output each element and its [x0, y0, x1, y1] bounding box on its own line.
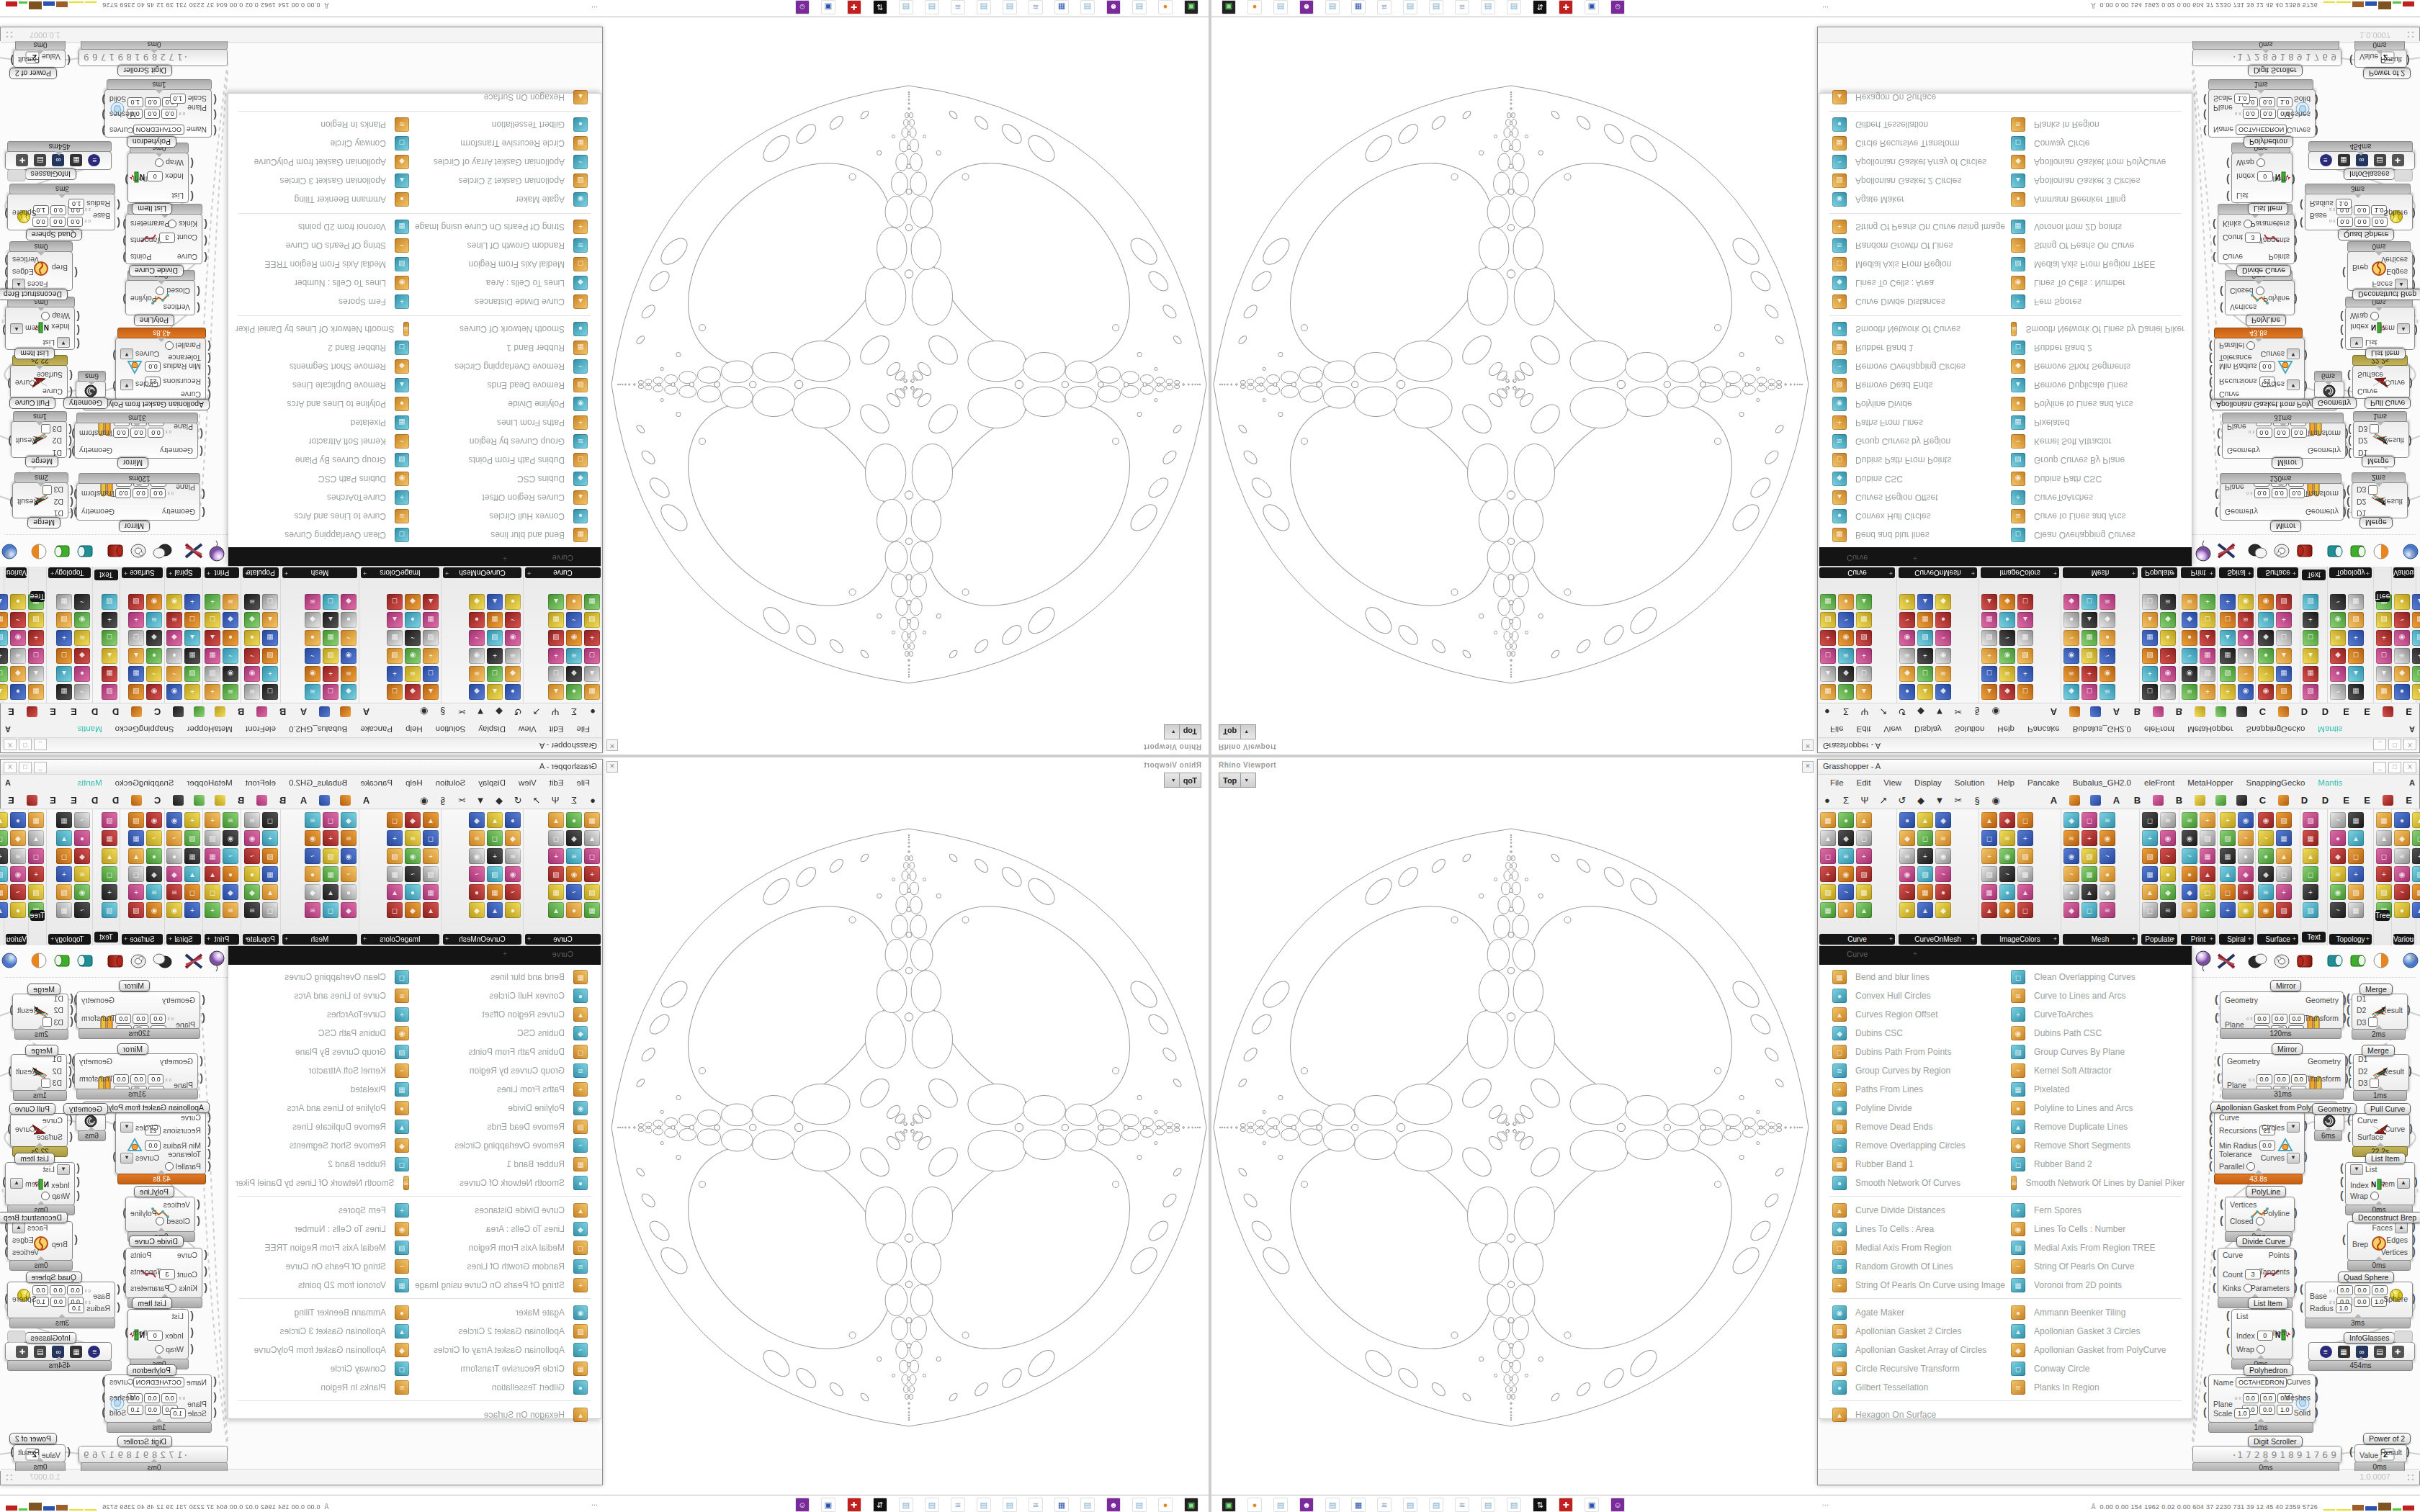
tab-curveonmesh[interactable]: CurveOnMesh+ — [443, 934, 521, 945]
minimize-button[interactable]: _ — [2373, 739, 2386, 750]
number-input[interactable]: 0.0 — [67, 217, 83, 227]
menu-item[interactable]: ◆Remove Short Segments — [2011, 1136, 2184, 1155]
menu-item[interactable]: ◉Dubins Path CSC — [236, 1024, 409, 1043]
minimize-button[interactable]: _ — [2373, 762, 2386, 773]
component-icon[interactable]: ● — [505, 594, 521, 610]
component-icon[interactable]: + — [2376, 630, 2392, 646]
component-icon[interactable]: ▦ — [2200, 848, 2215, 864]
menu-item[interactable]: ▨Remove Dead Ends — [1832, 376, 2005, 395]
gh-component-divide-curve[interactable]: CurveCount3KinksPointsTangentsParameters — [2218, 214, 2295, 264]
gh-component-apollonian-gasket-from-polycurve[interactable]: CurveRecursions21Min Radius0.0ToleranceP… — [115, 1112, 206, 1174]
component-icon[interactable]: ≋ — [2099, 902, 2115, 918]
component-icon[interactable]: + — [2412, 648, 2420, 664]
component-icon[interactable]: ▲ — [2081, 884, 2097, 900]
number-input[interactable]: 0.0 — [2272, 1014, 2287, 1024]
component-icon[interactable]: ● — [146, 648, 162, 664]
component-icon[interactable]: ~ — [223, 648, 238, 664]
menu-item[interactable]: +String Of Pearls On Curve using Image — [1832, 217, 2005, 236]
component-icon[interactable]: ▦ — [387, 866, 403, 882]
toolbar-plugin-letter-14[interactable]: E — [63, 707, 84, 718]
menu-item[interactable]: ◻Rubber Band 2 — [2011, 338, 2184, 357]
component-icon[interactable]: ~ — [1935, 630, 1951, 646]
component-name-tag[interactable]: InfoGlasses — [25, 1332, 76, 1344]
component-icon[interactable]: ≋ — [166, 884, 182, 900]
component-icon[interactable]: ≋ — [2238, 884, 2254, 900]
tab-mesh[interactable]: Mesh+ — [2063, 934, 2138, 945]
close-button[interactable]: X — [4, 762, 17, 773]
tab-add-icon[interactable]: + — [245, 567, 248, 578]
component-icon[interactable]: ≋ — [1838, 848, 1854, 864]
digit[interactable]: ·1 — [177, 1449, 189, 1460]
menu-item[interactable]: ◻Medial Axis From Region — [1832, 255, 2005, 274]
number-input[interactable]: 0.0 — [2259, 98, 2275, 108]
number-input[interactable]: 1.0 — [2234, 1408, 2250, 1418]
menu-item[interactable]: ●Convex Hull Circles — [1832, 986, 2005, 1005]
number-input[interactable]: 0.0 — [133, 1014, 148, 1024]
menu-item[interactable]: +CurveToArches — [236, 488, 409, 507]
menu-item[interactable]: ▲Apollonian Gasket 3 Circles — [2011, 1322, 2184, 1341]
menu-item-bubalus_gh2.0[interactable]: Bubalus_GH2.0 — [282, 778, 354, 787]
toolbar-icon-0[interactable]: ● — [583, 795, 602, 806]
menu-item[interactable]: ~Kernel Soft Attractor — [2011, 1061, 2184, 1080]
component-icon[interactable]: ◉ — [146, 902, 162, 918]
component-icon[interactable]: ▲ — [0, 812, 8, 828]
tab-add-icon[interactable]: + — [2210, 934, 2213, 945]
toolbar-plugin-letter-17[interactable]: E — [2398, 795, 2419, 806]
component-icon[interactable]: ◆ — [2099, 884, 2115, 900]
menu-item[interactable]: ◉Lines To Cells : Number — [2011, 1220, 2184, 1238]
component-name-tag[interactable]: Geometry — [63, 1103, 108, 1115]
component-icon[interactable]: ◉ — [2238, 594, 2254, 610]
component-icon[interactable]: + — [2017, 666, 2033, 682]
menu-item[interactable]: ◻Dubins Path From Points — [1832, 451, 2005, 469]
component-icon[interactable]: + — [1981, 648, 1997, 664]
menu-item[interactable]: ▦Circle Recursive Transform — [1832, 1359, 2005, 1378]
component-icon[interactable]: + — [584, 630, 600, 646]
taskbar-app-badge-purple[interactable]: ☺ — [795, 1498, 810, 1512]
menu-item-snappinggecko[interactable]: SnappingGecko — [2239, 725, 2311, 734]
toolbar-plugin-letter-15[interactable]: E — [42, 707, 63, 718]
menu-item[interactable]: ◉Lines To Cells : Number — [2011, 274, 2184, 292]
component-icon[interactable]: ~ — [2258, 666, 2274, 682]
number-input[interactable]: 1.0 — [68, 1303, 84, 1313]
digit[interactable]: ·1 — [2231, 53, 2243, 63]
component-icon[interactable]: ◻ — [1917, 666, 1933, 682]
component-icon[interactable]: ◻ — [2142, 902, 2158, 918]
menu-item[interactable]: ~Remove Overlapping Circles — [415, 357, 588, 376]
number-input[interactable]: 0.0 — [32, 217, 48, 227]
component-icon[interactable]: ▨ — [28, 612, 44, 628]
component-icon[interactable]: ~ — [469, 866, 485, 882]
menu-item[interactable]: ◉Polyline Divide — [415, 1099, 588, 1117]
viewport-view-name[interactable]: Top — [1179, 725, 1201, 739]
component-name-tag[interactable]: Deconstruct Brep — [0, 1212, 68, 1223]
window-titlebar[interactable]: Grasshopper - A _□X — [1818, 737, 2419, 752]
component-name-tag[interactable]: Merge — [2362, 456, 2395, 467]
component-icon[interactable]: ◉ — [305, 830, 321, 846]
toolbar-plugin-letter-12[interactable]: D — [2294, 707, 2315, 718]
component-icon[interactable]: ▦ — [2303, 830, 2318, 846]
gh-component-divide-curve[interactable]: CurveCount3KinksPointsTangentsParameters — [125, 214, 202, 264]
canvas-toolbar-sphere-dark-icon[interactable] — [2247, 539, 2269, 560]
component-icon[interactable]: ◻ — [323, 684, 339, 700]
number-input[interactable]: 0.0 — [2289, 1014, 2305, 1024]
menu-item[interactable]: ▦Circle Recursive Transform — [415, 1359, 588, 1378]
component-icon[interactable]: ● — [1838, 812, 1854, 828]
component-icon[interactable]: ◆ — [469, 812, 485, 828]
component-icon[interactable]: ▦ — [2376, 812, 2392, 828]
component-icon[interactable]: ≋ — [1935, 830, 1951, 846]
number-input[interactable]: 0.0 — [2337, 217, 2353, 227]
number-input[interactable]: 0.0 — [2289, 489, 2305, 499]
tab-various[interactable]: Various+ — [6, 567, 27, 578]
component-icon[interactable]: ◻ — [102, 866, 117, 882]
toolbar-plugin-icon-16[interactable] — [27, 795, 37, 806]
component-icon[interactable]: ● — [1935, 884, 1951, 900]
component-icon[interactable]: ≋ — [2330, 866, 2346, 882]
expand-down-button[interactable]: ▼ — [2350, 337, 2363, 348]
component-icon[interactable]: ~ — [2238, 666, 2254, 682]
taskbar-app-window[interactable]: ▣ — [821, 1498, 835, 1512]
component-icon[interactable]: ▨ — [1981, 630, 1997, 646]
component-icon[interactable]: ▲ — [2200, 866, 2215, 882]
menu-item[interactable]: ◆Lines To Cells : Area — [1832, 1220, 2005, 1238]
tab-add-icon[interactable]: + — [8, 567, 12, 578]
toolbar-plugin-letter-6[interactable]: B — [2169, 795, 2190, 806]
taskbar-app-notes[interactable]: ▤ — [977, 1498, 991, 1512]
component-name-tag[interactable]: Geometry — [63, 397, 108, 409]
menu-item-metahopper[interactable]: MetaHopper — [181, 725, 239, 734]
component-icon[interactable]: ● — [1999, 884, 2015, 900]
toolbar-icon-0[interactable]: ● — [583, 707, 602, 718]
component-icon[interactable]: + — [0, 648, 8, 664]
component-icon[interactable]: ▦ — [2412, 884, 2420, 900]
component-icon[interactable]: ● — [1935, 612, 1951, 628]
menu-item[interactable]: ◉Lines To Cells : Number — [236, 274, 409, 292]
component-icon[interactable]: ≋ — [2394, 848, 2410, 864]
component-icon[interactable]: ◻ — [1981, 666, 1997, 682]
toggle-circle[interactable] — [165, 1162, 174, 1171]
component-icon[interactable]: ▨ — [2142, 648, 2158, 664]
digit[interactable]: 9 — [117, 53, 123, 63]
gh-component-list-item[interactable]: ▼ListIndexNWrapItem▲ — [2345, 307, 2415, 350]
menu-item[interactable]: ≋Smooth Network Of Lines by Daniel Piker — [2011, 1174, 2184, 1192]
component-icon[interactable]: ≋ — [10, 848, 26, 864]
toolbar-plugin-icon-2[interactable] — [319, 707, 330, 718]
canvas-toolbar-cyl-red-icon[interactable] — [2295, 951, 2315, 974]
taskbar-app-media[interactable]: ☻ — [1106, 0, 1121, 14]
component-icon[interactable]: ▦ — [323, 630, 339, 646]
component-name-tag[interactable]: Polyhedron — [127, 136, 176, 148]
taskbar-app-notes[interactable]: ▤ — [1507, 0, 1521, 14]
number-input[interactable]: 0.0 — [2257, 428, 2272, 438]
component-icon[interactable]: ◻ — [487, 830, 503, 846]
number-input[interactable]: 0.0 — [67, 1285, 83, 1295]
canvas-toolbar-balloon-icon[interactable] — [207, 537, 226, 562]
component-icon[interactable]: ● — [223, 630, 238, 646]
component-icon[interactable]: ◉ — [2063, 848, 2079, 864]
component-icon[interactable]: ● — [341, 884, 357, 900]
number-input[interactable]: 0.0 — [50, 217, 66, 227]
component-icon[interactable]: ● — [244, 630, 260, 646]
component-icon[interactable]: ▦ — [423, 884, 439, 900]
component-icon[interactable]: ◆ — [223, 612, 238, 628]
digit[interactable]: 8 — [2288, 53, 2294, 63]
tab-print[interactable]: Print+ — [205, 567, 239, 578]
digit[interactable]: 1 — [2280, 53, 2285, 63]
component-icon[interactable]: ◆ — [244, 884, 260, 900]
taskbar-app-notes[interactable]: ▤ — [977, 0, 991, 14]
toggle-circle[interactable] — [2246, 342, 2255, 351]
toolbar-plugin-icon-1[interactable] — [340, 707, 351, 718]
component-icon[interactable]: ◉ — [2258, 902, 2274, 918]
gh-component-apollonian-gasket-from-polycurve[interactable]: CurveRecursions21Min Radius0.0ToleranceP… — [2214, 1112, 2305, 1174]
menu-item[interactable]: ▨Medial Axis From Region TREE — [2011, 1238, 2184, 1257]
component-icon[interactable]: ◻ — [487, 666, 503, 682]
tab-add-icon[interactable]: + — [124, 934, 127, 945]
tab-populate[interactable]: Populate+ — [243, 567, 279, 578]
menu-item-elefront[interactable]: eleFront — [2138, 778, 2181, 787]
tab-surface[interactable]: Surface+ — [122, 567, 163, 578]
menu-item[interactable]: ▨Medial Axis From Region TREE — [236, 255, 409, 274]
toolbar-plugin-letter-0[interactable]: A — [356, 795, 377, 806]
taskbar-app-floppy[interactable]: ▦ — [1054, 1498, 1069, 1512]
canvas-toolbar-ball-orange-icon[interactable] — [2371, 538, 2391, 561]
taskbar-app-terminal[interactable]: ▣ — [1184, 1498, 1198, 1512]
component-icon[interactable]: + — [323, 830, 339, 846]
menu-item[interactable]: ●Ammann Beenker Tiling — [236, 190, 409, 209]
component-icon[interactable]: + — [2142, 666, 2158, 682]
minimize-button[interactable]: _ — [34, 739, 47, 750]
component-icon[interactable]: ◉ — [2330, 612, 2346, 628]
component-icon[interactable]: ◻ — [184, 884, 200, 900]
toolbar-icon-1[interactable]: Σ — [565, 707, 583, 718]
expand-up-button[interactable]: ▲ — [2397, 1178, 2410, 1189]
menu-item[interactable]: ◻Conway Circle — [236, 1359, 409, 1378]
menu-item[interactable]: ▦Pixelated — [2011, 1080, 2184, 1099]
canvas-toolbar-bowtie-icon[interactable] — [2215, 951, 2237, 974]
tab-topology[interactable]: Topology+ — [2329, 567, 2372, 578]
component-icon[interactable]: ● — [2394, 594, 2410, 610]
component-name-tag[interactable]: Quad Sphere — [26, 1272, 82, 1283]
component-icon[interactable]: ◉ — [223, 666, 238, 682]
menu-item-solution[interactable]: Solution — [429, 725, 472, 734]
number-input[interactable]: 1.0 — [2234, 94, 2250, 104]
taskbar-app-scroll[interactable]: ≋ — [1455, 1498, 1469, 1512]
menu-item[interactable]: +Paths From Lines — [415, 1080, 588, 1099]
toolbar-plugin-icon-5[interactable] — [256, 795, 267, 806]
component-icon[interactable]: ● — [469, 884, 485, 900]
component-icon[interactable]: ◆ — [2394, 666, 2410, 682]
digit[interactable]: 2 — [160, 53, 166, 63]
component-icon[interactable]: ◉ — [1935, 648, 1951, 664]
menu-item-metahopper[interactable]: MetaHopper — [2181, 725, 2239, 734]
component-icon[interactable]: ▲ — [584, 666, 600, 682]
component-icon[interactable]: ▨ — [323, 848, 339, 864]
toggle-circle[interactable] — [2257, 1345, 2265, 1354]
tab-text[interactable]: Text — [94, 932, 118, 942]
component-icon[interactable]: ◆ — [2063, 902, 2079, 918]
toolbar-icon-3[interactable]: ↗ — [1874, 707, 1893, 718]
menu-item[interactable]: ~Remove Overlapping Circles — [415, 1136, 588, 1155]
resize-grip[interactable] — [5, 1473, 14, 1482]
component-icon[interactable]: ▲ — [2081, 612, 2097, 628]
component-icon[interactable]: + — [2276, 612, 2292, 628]
component-icon[interactable]: ▦ — [1917, 612, 1933, 628]
menu-item-edit[interactable]: Edit — [543, 778, 570, 787]
taskbar-app-notes[interactable]: ▤ — [1003, 1498, 1017, 1512]
menu-item[interactable]: ▲Curve Divide Distances — [415, 1201, 588, 1220]
component-icon[interactable]: ● — [405, 612, 421, 628]
menu-item[interactable]: ≋Smooth Network Of Lines by Daniel Piker — [2011, 320, 2184, 338]
component-icon[interactable]: ~ — [1899, 612, 1915, 628]
component-icon[interactable]: ≋ — [2238, 612, 2254, 628]
component-icon[interactable]: ◆ — [2182, 884, 2197, 900]
viewport-view-dropdown[interactable]: Top ▼ — [1164, 724, 1201, 739]
component-icon[interactable]: ≋ — [1899, 648, 1915, 664]
canvas-toolbar-cyl-green-icon[interactable] — [52, 951, 72, 974]
component-icon[interactable]: ▨ — [2348, 884, 2364, 900]
menu-item[interactable]: ●Ammann Beenker Tiling — [2011, 1303, 2184, 1322]
menu-item-view[interactable]: View — [512, 778, 543, 787]
menu-item[interactable]: ◆Dubins CSC — [415, 1024, 588, 1043]
component-icon[interactable]: + — [423, 848, 439, 864]
component-icon[interactable]: ▦ — [1981, 612, 1997, 628]
component-icon[interactable]: ▦ — [1820, 902, 1836, 918]
toolbar-icon-0[interactable]: ● — [1818, 707, 1837, 718]
toolbar-plugin-letter-12[interactable]: D — [105, 795, 126, 806]
component-icon[interactable]: ● — [2330, 666, 2346, 682]
toolbar-plugin-icon-2[interactable] — [319, 795, 330, 806]
component-icon[interactable]: ● — [2160, 630, 2176, 646]
component-icon[interactable]: ▲ — [1856, 812, 1872, 828]
tab-add-icon[interactable]: + — [2053, 567, 2057, 578]
component-name-tag[interactable]: Mirror — [2270, 980, 2301, 991]
menu-item-edit[interactable]: Edit — [1850, 778, 1878, 787]
component-icon[interactable]: ~ — [505, 884, 521, 900]
component-icon[interactable]: ◆ — [1935, 684, 1951, 700]
taskbar-app-notes[interactable]: ▤ — [1003, 0, 1017, 14]
toolbar-plugin-letter-13[interactable]: D — [84, 707, 105, 718]
expand-down-button[interactable]: ▼ — [2287, 348, 2300, 359]
toolbar-plugin-icon-9[interactable] — [173, 707, 184, 718]
tab-tree[interactable]: Tree — [30, 910, 45, 921]
component-icon[interactable]: ▨ — [584, 884, 600, 900]
menu-item[interactable]: ●Smooth Network Of Curves — [1832, 1174, 2005, 1192]
gh-component-pull-curve[interactable]: CurveSurfaceCurve — [2352, 365, 2410, 399]
menu-item[interactable]: ~Kernel Soft Attractor — [236, 432, 409, 451]
component-icon[interactable]: ~ — [2394, 612, 2410, 628]
component-icon[interactable]: ◻ — [387, 684, 403, 700]
menu-item[interactable]: ◆Remove Short Segments — [2011, 357, 2184, 376]
component-icon[interactable]: ▲ — [487, 594, 503, 610]
toolbar-plugin-letter-6[interactable]: B — [2169, 707, 2190, 718]
component-icon[interactable]: ▨ — [102, 684, 117, 700]
component-icon[interactable]: ▲ — [1917, 594, 1933, 610]
component-icon[interactable]: + — [2200, 684, 2215, 700]
taskbar-overflow[interactable]: ... — [1822, 5, 1829, 14]
menu-item[interactable]: ~String Of Pearls On Curve — [236, 1257, 409, 1276]
menu-item-pancake[interactable]: Pancake — [354, 725, 399, 734]
taskbar-app-media[interactable]: ☻ — [1299, 1498, 1314, 1512]
menu-item[interactable]: ≋Planks In Region — [2011, 115, 2184, 134]
component-icon[interactable]: ▨ — [2017, 648, 2033, 664]
component-icon[interactable]: ◻ — [28, 848, 44, 864]
menu-item-pancake[interactable]: Pancake — [354, 778, 399, 787]
digit[interactable]: 8 — [126, 53, 132, 63]
component-icon[interactable]: ◉ — [74, 884, 90, 900]
component-name-tag[interactable]: List Item — [14, 1153, 55, 1164]
component-icon[interactable]: ● — [166, 648, 182, 664]
expand-down-button[interactable]: ▼ — [2287, 1122, 2300, 1133]
canvas-toolbar-donut-icon[interactable] — [128, 952, 148, 973]
menu-item[interactable]: ◆Lines To Cells : Area — [1832, 274, 2005, 292]
menu-item[interactable]: ●Smooth Network Of Curves — [415, 1174, 588, 1192]
component-name-tag[interactable]: Power of 2 — [9, 68, 57, 79]
toolbar-plugin-letter-4[interactable]: B — [2127, 707, 2148, 718]
component-icon[interactable]: ▲ — [1981, 902, 1997, 918]
menu-item[interactable]: ◻Medial Axis From Region — [415, 1238, 588, 1257]
tab-curve[interactable]: Curve+ — [525, 567, 601, 578]
tab-tree[interactable]: Tree — [30, 591, 45, 602]
toolbar-plugin-icon-8[interactable] — [2215, 795, 2226, 806]
canvas-toolbar-cyl-green-icon[interactable] — [2348, 951, 2368, 974]
component-icon[interactable]: ▨ — [2081, 848, 2097, 864]
component-icon[interactable]: ◻ — [1856, 666, 1872, 682]
component-icon[interactable]: ▦ — [584, 684, 600, 700]
tab-topology[interactable]: Topology+ — [48, 934, 91, 945]
component-icon[interactable]: ≋ — [244, 902, 260, 918]
menu-item[interactable]: ▲Curve Divide Distances — [1832, 1201, 2005, 1220]
menu-item-edit[interactable]: Edit — [1850, 725, 1878, 734]
component-icon[interactable]: + — [2200, 594, 2215, 610]
component-icon[interactable]: ◉ — [2394, 630, 2410, 646]
component-icon[interactable]: ◉ — [505, 630, 521, 646]
component-icon[interactable]: ▲ — [2200, 630, 2215, 646]
menu-item-solution[interactable]: Solution — [1948, 778, 1991, 787]
menu-item[interactable]: ~Apollonian Gasket Array of Circles — [1832, 153, 2005, 171]
component-icon[interactable]: ~ — [10, 612, 26, 628]
menu-item-mantis[interactable]: Mantis — [2311, 778, 2349, 787]
menu-item[interactable]: ▦Rubber Band 1 — [1832, 338, 2005, 357]
taskbar-app-scroll[interactable]: ≋ — [951, 1498, 965, 1512]
component-icon[interactable]: ▨ — [128, 684, 144, 700]
menu-item[interactable]: ▨Medial Axis From Region TREE — [236, 1238, 409, 1257]
taskbar-app-notes[interactable]: ▤ — [899, 1498, 913, 1512]
expand-up-button[interactable]: ▲ — [10, 1178, 23, 1189]
component-icon[interactable]: ▦ — [2220, 648, 2236, 664]
menu-item[interactable]: ◻Dubins Path From Points — [415, 1043, 588, 1061]
menu-item[interactable]: ▲Apollonian Gasket 3 Circles — [2011, 171, 2184, 190]
toolbar-plugin-icon-11[interactable] — [2278, 707, 2289, 718]
component-icon[interactable]: ● — [10, 594, 26, 610]
canvas-toolbar-cyl-teal-icon[interactable] — [75, 538, 95, 561]
gh-canvas[interactable]: ▾ ⇟ Curve + ▦Bend and blur lines◻Clean O… — [0, 945, 602, 1471]
component-icon[interactable]: ~ — [2330, 902, 2346, 918]
component-icon[interactable]: ▨ — [2348, 612, 2364, 628]
component-name-tag[interactable]: Digit Scroller — [2248, 1436, 2303, 1447]
component-name-tag[interactable]: List Item — [132, 203, 172, 215]
menu-item[interactable]: ▦Bend and blur lines — [415, 526, 588, 544]
gh-component-deconstruct-brep[interactable]: BrepFaces▲EdgesVertices — [2347, 1221, 2413, 1261]
number-input[interactable]: 0.0 — [144, 109, 160, 120]
taskbar-overflow[interactable]: ... — [591, 1498, 598, 1507]
menu-item[interactable]: +String Of Pearls On Curve using Image — [415, 217, 588, 236]
canvas-toolbar-cyl-teal-icon[interactable] — [75, 951, 95, 974]
toolbar-plugin-icon-7[interactable] — [2195, 707, 2205, 718]
component-icon[interactable]: ▨ — [1917, 866, 1933, 882]
menu-item[interactable]: ◻Rubber Band 2 — [2011, 1155, 2184, 1174]
